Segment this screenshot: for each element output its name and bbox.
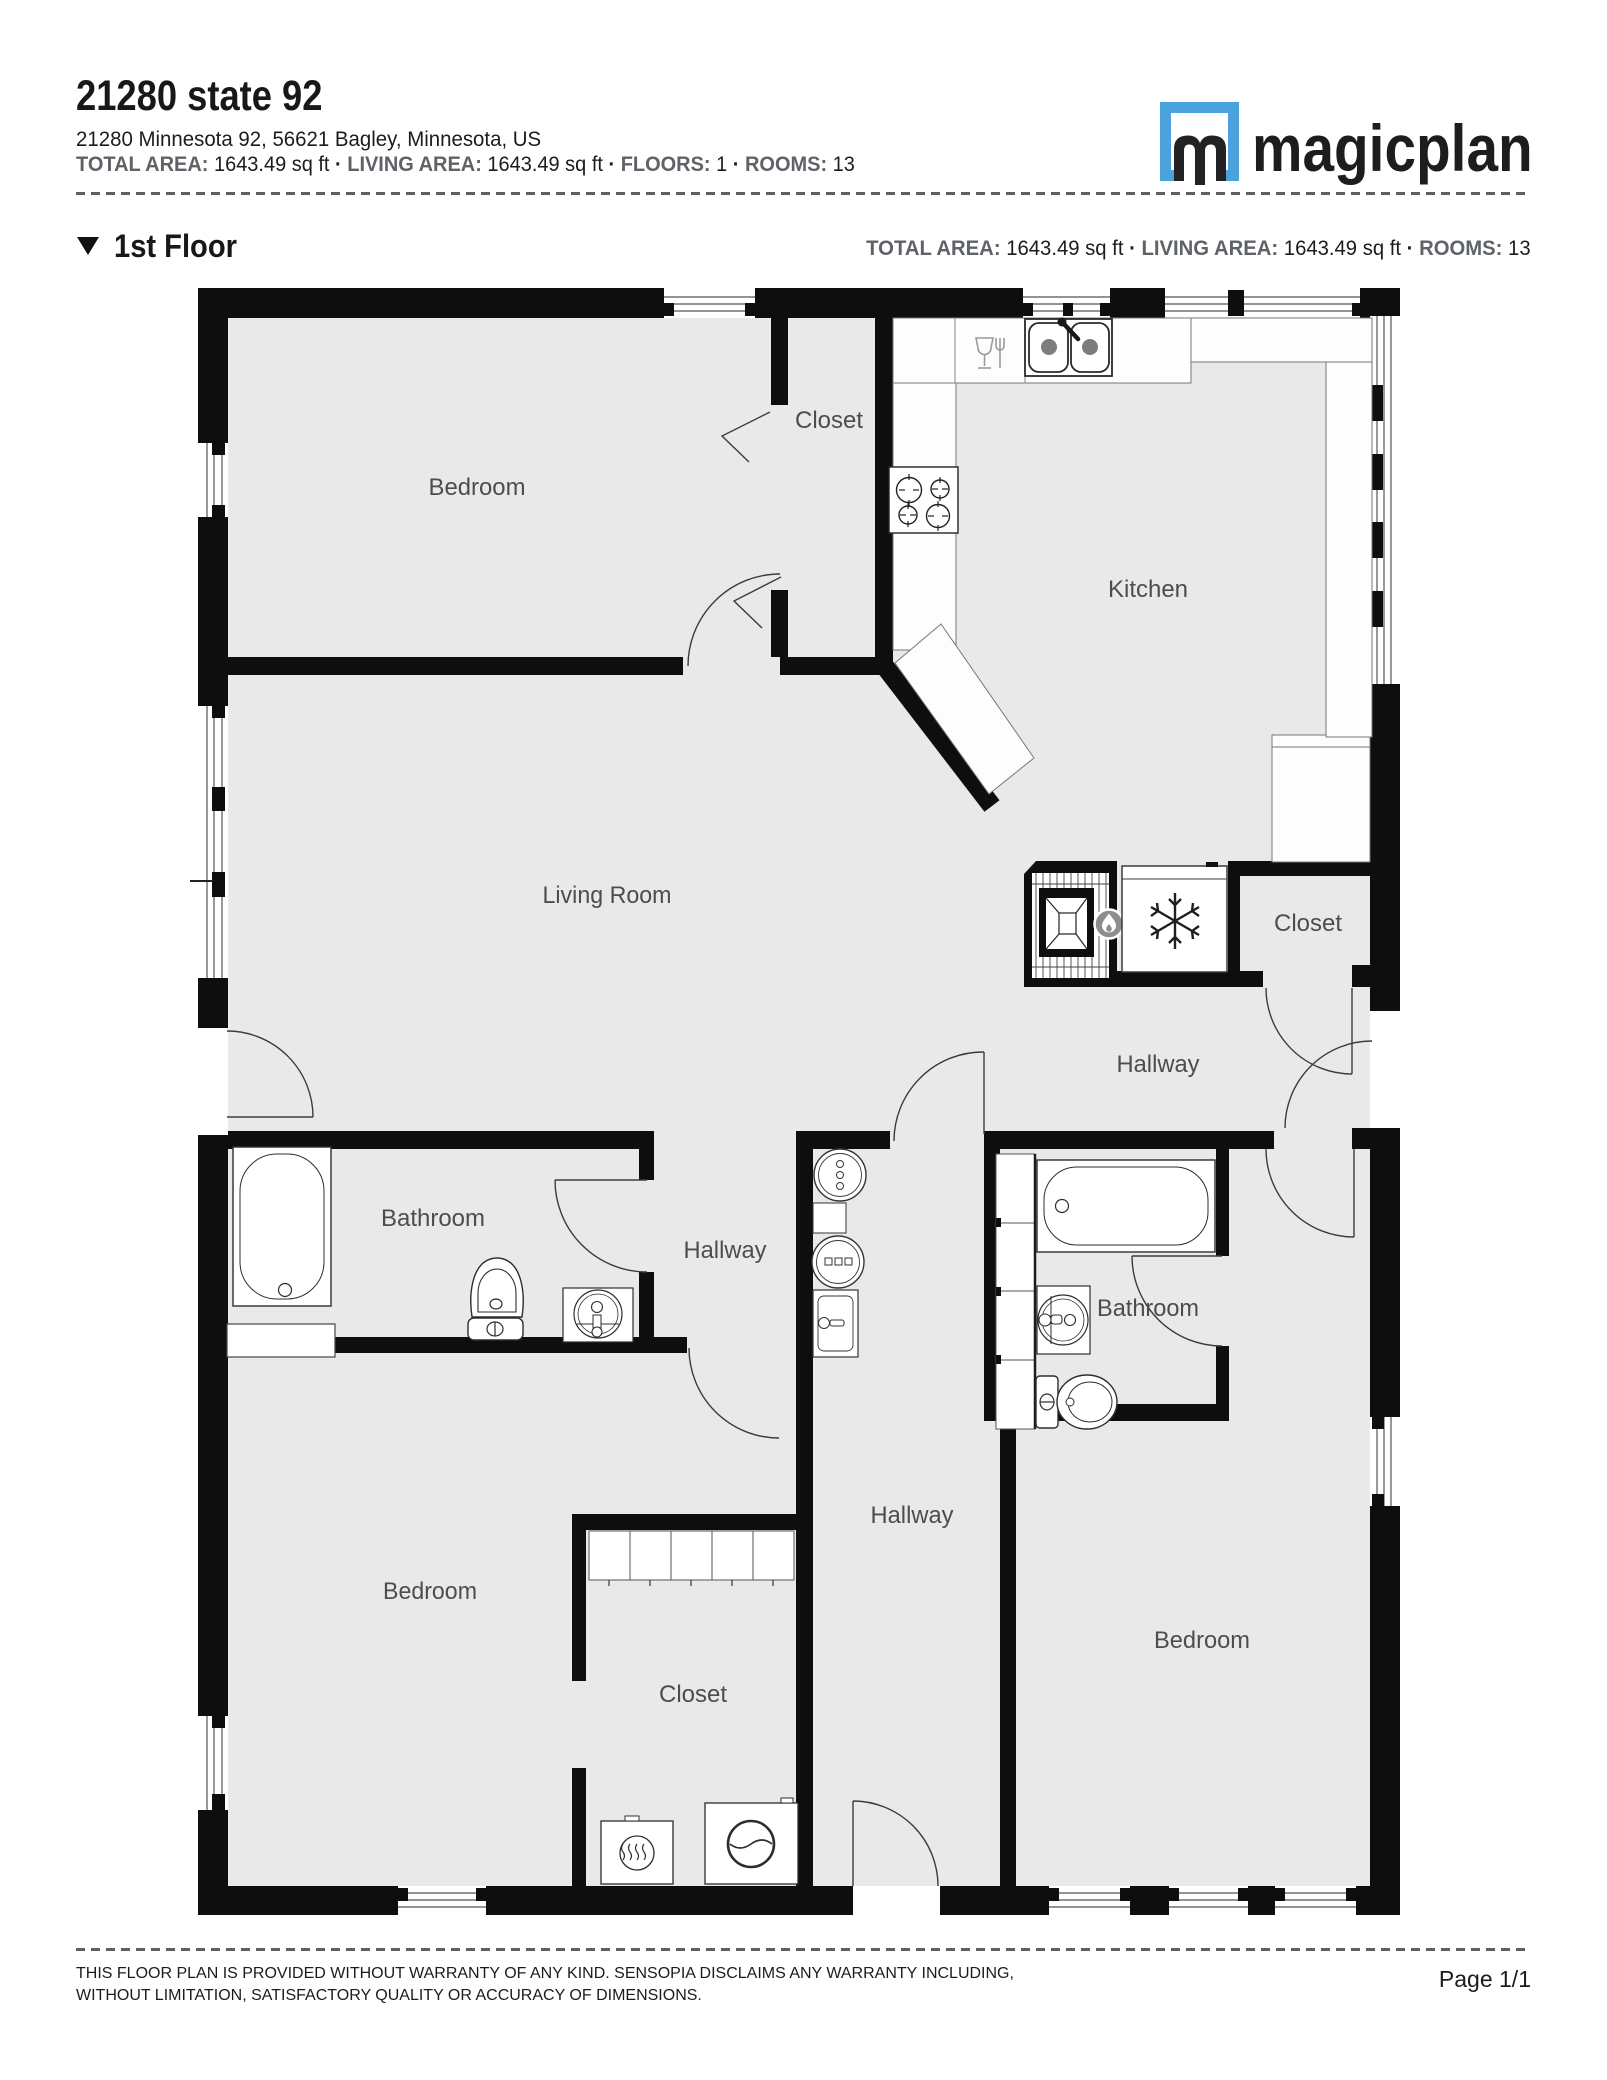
svg-text:Hallway: Hallway: [871, 1502, 955, 1529]
svg-text:Closet: Closet: [795, 407, 863, 434]
svg-text:Hallway: Hallway: [1117, 1051, 1201, 1078]
svg-text:Bedroom: Bedroom: [429, 474, 526, 501]
svg-text:Bedroom: Bedroom: [1154, 1627, 1250, 1654]
svg-text:Kitchen: Kitchen: [1108, 576, 1188, 603]
svg-text:Hallway: Hallway: [684, 1237, 768, 1264]
svg-text:Closet: Closet: [659, 1681, 727, 1708]
svg-text:Living Room: Living Room: [543, 882, 672, 909]
svg-text:magicplan: magicplan: [1252, 112, 1533, 186]
svg-text:Bathroom: Bathroom: [1097, 1295, 1199, 1322]
svg-text:Bedroom: Bedroom: [383, 1578, 477, 1605]
svg-text:Bathroom: Bathroom: [381, 1205, 485, 1232]
svg-text:Closet: Closet: [1274, 910, 1342, 937]
